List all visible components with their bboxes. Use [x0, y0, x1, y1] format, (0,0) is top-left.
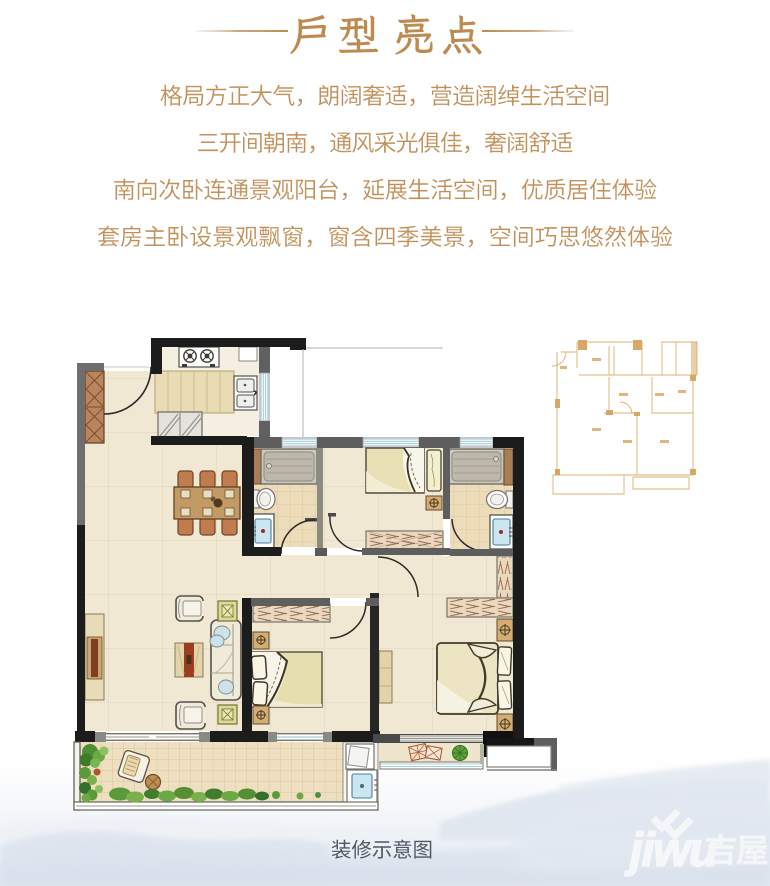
svg-text:jiwu: jiwu: [624, 823, 723, 876]
